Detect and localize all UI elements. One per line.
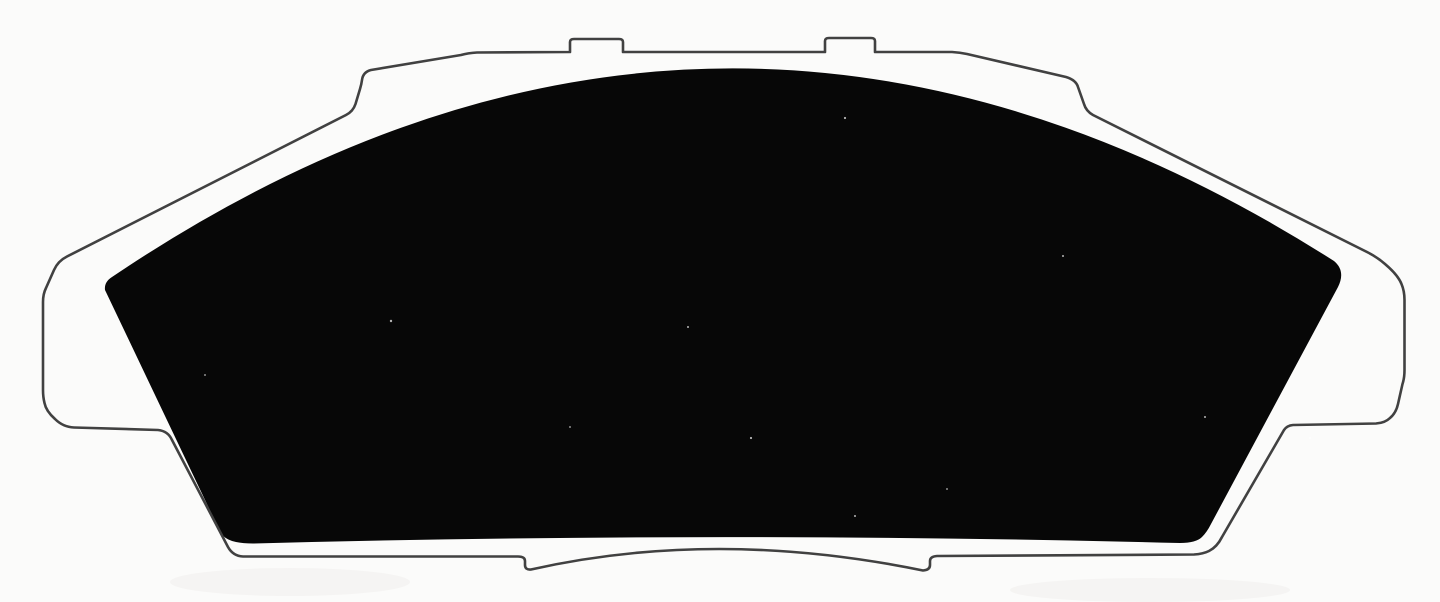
scanned-brake-pad-image <box>0 0 1440 602</box>
brake-pad-drawing <box>0 0 1440 602</box>
